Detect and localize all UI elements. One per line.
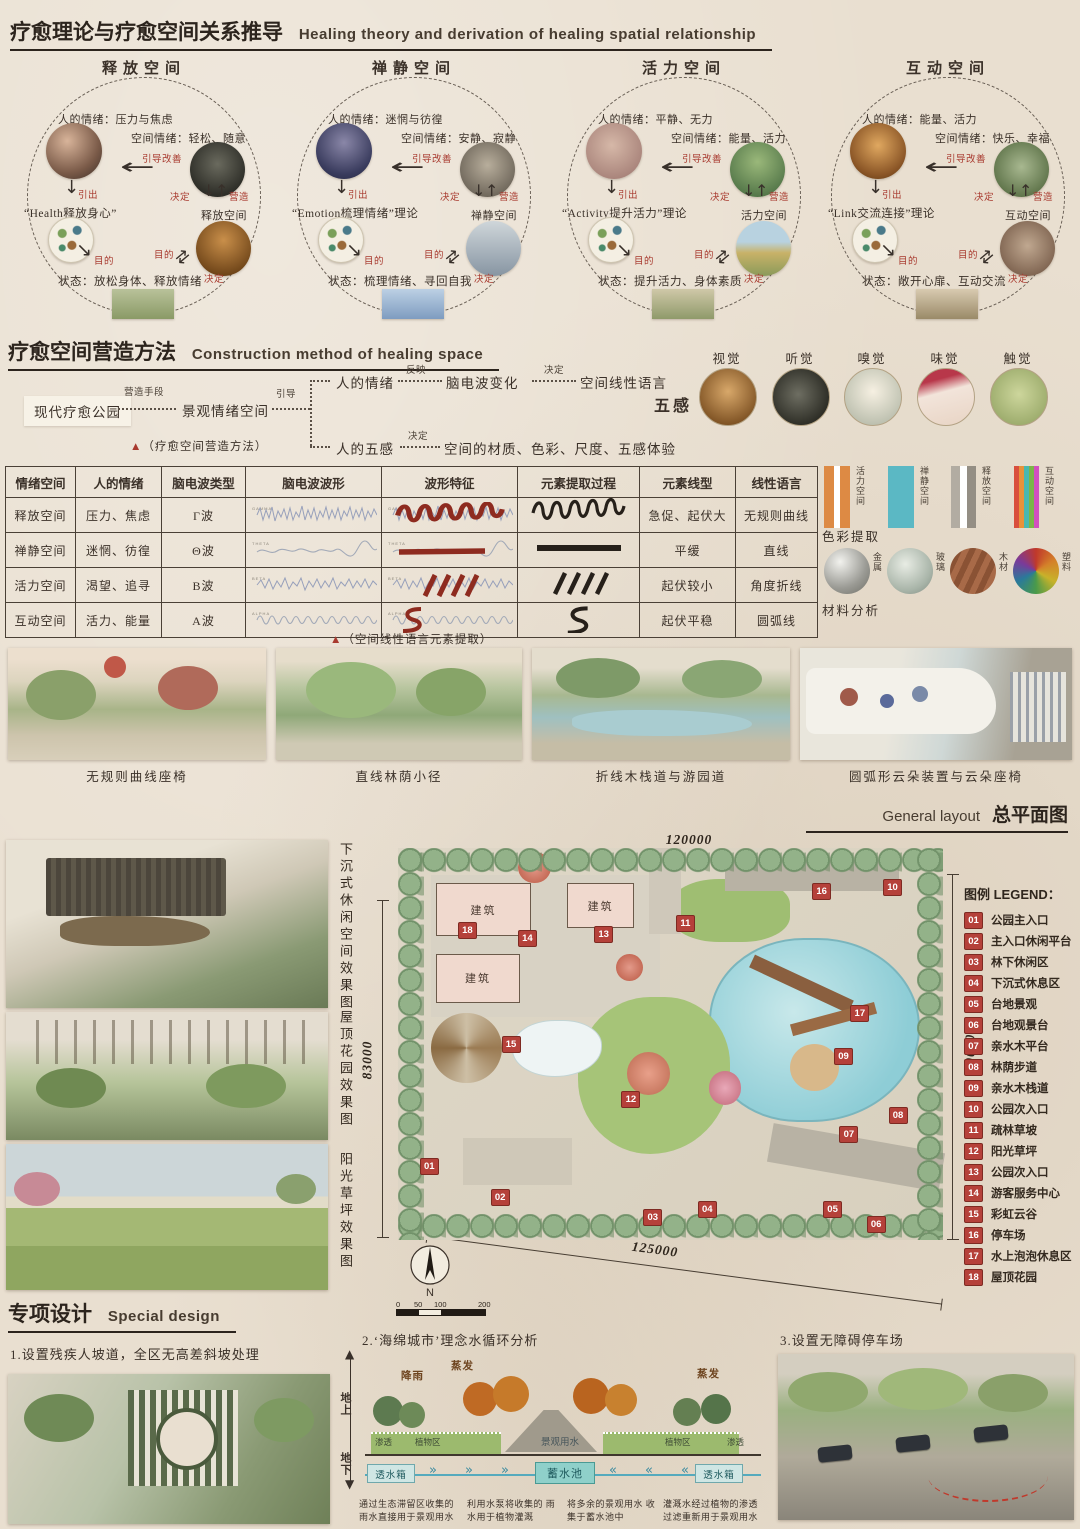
plant-zone-label: 植物区 xyxy=(415,1436,441,1448)
create-label: 营造 xyxy=(769,189,789,203)
plan-tree-border-right xyxy=(917,848,943,1240)
swatch-label: 互动空间 xyxy=(1043,466,1056,528)
special-item-2: 2.‘海绵城市’理念水循环分析 xyxy=(362,1330,538,1349)
sense-label-smell: 嗅觉 xyxy=(844,348,900,367)
create-arrow-icon: ↑ xyxy=(755,183,768,199)
plan-marker-10: 10 xyxy=(883,879,902,896)
create-label: 营造 xyxy=(499,189,519,203)
plan-marker-18: 18 xyxy=(458,922,477,939)
plan-marker-05: 05 xyxy=(823,1201,842,1218)
legend-item-label: 水上泡泡休息区 xyxy=(991,1248,1072,1264)
color-extract-caption: 色彩提取 xyxy=(822,526,880,545)
flow-chevron-icon: » xyxy=(501,1464,509,1477)
legend-item-label: 亲水木栈道 xyxy=(991,1080,1049,1096)
legend-item-label: 阳光草坪 xyxy=(991,1143,1037,1159)
plan-marker-03: 03 xyxy=(643,1209,662,1226)
svg-text:BETA: BETA xyxy=(252,576,266,581)
header: 疗愈理论与疗愈空间关系推导 Healing theory and derivat… xyxy=(10,16,772,46)
create-arrow-icon: ↑ xyxy=(1019,183,1032,199)
plan-tree-border-left xyxy=(398,848,424,1240)
plan-marker-16: 16 xyxy=(812,883,831,900)
flow-chevron-icon: » xyxy=(465,1464,473,1477)
evap-label: 蒸发 xyxy=(451,1358,474,1373)
legend-item-label: 台地观景台 xyxy=(991,1017,1049,1033)
above-ground-label: 地上 xyxy=(337,1392,353,1416)
legend-item-label: 彩虹云谷 xyxy=(991,1206,1037,1222)
legend-item-label: 停车场 xyxy=(991,1227,1026,1243)
plan-marker-12: 12 xyxy=(621,1091,640,1108)
person-photo xyxy=(586,123,642,179)
sense-label-vision: 视觉 xyxy=(699,348,755,367)
axis-down-arrow-icon: ▼ xyxy=(345,1478,354,1490)
legend-item-label: 林荫步道 xyxy=(991,1059,1037,1075)
legend-item-label: 游客服务中心 xyxy=(991,1185,1060,1201)
purpose-arrow-icon: ↘ xyxy=(616,241,632,260)
special-design-header: 专项设计 Special design xyxy=(8,1298,236,1328)
col-header: 脑电波类型 xyxy=(162,467,246,498)
plan-marker-11: 11 xyxy=(676,915,695,932)
render-ramp xyxy=(8,1374,330,1524)
eeg-waveform-gamma: GAMMA xyxy=(251,502,377,528)
page-title-en: Healing theory and derivation of healing… xyxy=(299,26,756,43)
material-photo-wood xyxy=(950,548,996,594)
plant-zone-label: 植物区 xyxy=(665,1436,691,1448)
seep-label: 渗透 xyxy=(375,1436,392,1448)
improve-arrow-icon: ← xyxy=(390,157,425,179)
below-ground-label: 地下 xyxy=(337,1452,353,1476)
create-label: 营造 xyxy=(229,189,249,203)
col-header: 情绪空间 xyxy=(6,467,76,498)
plan-marker-13: 13 xyxy=(594,926,613,943)
swatch-label: 释放空间 xyxy=(980,466,993,528)
state-photo xyxy=(652,289,714,319)
theory-circle-zen: 禅静空间 人的情绪：迷惘与彷徨 空间情绪：安静、寂静 引导改善 ← ↓ 引出 “… xyxy=(288,75,540,320)
north-arrow-icon xyxy=(404,1244,456,1288)
lead-label: 引出 xyxy=(348,187,368,201)
person-photo xyxy=(46,123,102,179)
table-caption: ▲（空间线性语言元素提取） xyxy=(330,631,492,647)
render-caption-roof: 屋顶花园效果图 xyxy=(336,1010,355,1129)
water-caption-1: 通过生态滞留区收集的 雨水直接用于景观用水 xyxy=(359,1498,459,1524)
page-title: 疗愈理论与疗愈空间关系推导 Healing theory and derivat… xyxy=(10,21,772,51)
decide-arrow-icon: ↓ xyxy=(202,183,215,199)
plan-marker-06: 06 xyxy=(867,1216,886,1233)
eeg-feature-gamma: GAMMA xyxy=(387,502,513,528)
theory-label: “Emotion梳理情绪”理论 xyxy=(292,205,418,221)
purpose-label: 目的 xyxy=(94,253,114,267)
ground-line xyxy=(365,1454,761,1456)
eeg-table: 情绪空间 人的情绪 脑电波类型 脑电波波形 波形特征 元素提取过程 元素线型 线… xyxy=(5,466,818,638)
lead-arrow-icon: ↓ xyxy=(868,179,883,197)
plan-building: 建筑 xyxy=(436,883,531,936)
plan-marker-08: 08 xyxy=(889,1107,908,1124)
flow-means-label: 营造手段 xyxy=(124,384,164,398)
legend-item-label: 主入口休闲平台 xyxy=(991,933,1072,949)
sense-label-hearing: 听觉 xyxy=(772,348,828,367)
person-photo xyxy=(850,123,906,179)
flow-chevron-icon: » xyxy=(429,1464,437,1477)
storage-pool-box: 蓄水池 xyxy=(535,1462,595,1484)
table-row: 活力空间渴望、追寻Β波 BETA BETA 起伏较小角度折线 xyxy=(6,568,818,603)
flow-mid-node: 景观情绪空间 xyxy=(182,400,269,420)
material-label: 金属 xyxy=(871,552,884,572)
gallery-caption-2: 直线林荫小径 xyxy=(276,766,522,785)
col-header: 元素线型 xyxy=(640,467,736,498)
plan-pink-tree xyxy=(709,1071,742,1104)
render-sunny-lawn xyxy=(6,1144,328,1290)
dim-left-line xyxy=(382,900,383,1238)
circle-title: 活力空间 xyxy=(558,57,810,78)
render-caption-sunken: 下沉式休闲空间效果图 xyxy=(336,842,355,1012)
purpose-arrow-icon: ↘ xyxy=(346,241,362,260)
col-header: 人的情绪 xyxy=(76,467,162,498)
route-arc xyxy=(928,1450,1048,1502)
seep-label: 渗透 xyxy=(727,1436,744,1448)
table-header-row: 情绪空间 人的情绪 脑电波类型 脑电波波形 波形特征 元素提取过程 元素线型 线… xyxy=(6,467,818,498)
circle-title: 互动空间 xyxy=(822,57,1074,78)
space-photo-2 xyxy=(196,221,251,276)
permeable-tank-box: 透水箱 xyxy=(367,1464,415,1483)
compass: N xyxy=(404,1244,456,1299)
legend-item-label: 公园主入口 xyxy=(991,912,1049,928)
special-item-3: 3.设置无障碍停车场 xyxy=(780,1330,904,1349)
improve-arrow-icon: ← xyxy=(120,157,155,179)
create-arrow-icon: ↑ xyxy=(485,183,498,199)
water-caption-3: 将多余的景观用水 收集于蓄水池中 xyxy=(567,1498,659,1524)
render-roof-garden xyxy=(6,1012,328,1140)
flow-dotted-line xyxy=(532,380,576,382)
five-senses-label: 五感 xyxy=(654,392,692,416)
swatch-zen: 禅静空间 xyxy=(888,466,931,528)
render-sunken-space xyxy=(6,840,328,1008)
plan-marker-02: 02 xyxy=(491,1189,510,1206)
dim-top-label: 120000 xyxy=(443,832,935,848)
flow-chevron-icon: « xyxy=(609,1464,617,1477)
col-header: 线性语言 xyxy=(736,467,818,498)
material-label: 木材 xyxy=(997,552,1010,572)
legend-title: 图例 LEGEND： xyxy=(964,884,1061,903)
flow-dotted-line xyxy=(310,446,330,448)
state-photo xyxy=(916,289,978,319)
flow-b2-senses: 人的五感 xyxy=(336,438,394,458)
scale-bar: 0 50 100 200 xyxy=(396,1300,506,1316)
water-cycle-diagram: ▲ ▼ 地上 地下 降雨 蒸发 蒸发 渗透 植物区 景观用水 植物区 渗透 » … xyxy=(345,1352,765,1524)
special-item-1: 1.设置残疾人坡道，全区无高差斜坡处理 xyxy=(10,1344,260,1363)
flow-b2-result: 空间的材质、色彩、尺度、五感体验 xyxy=(444,438,676,458)
lead-label: 引出 xyxy=(882,187,902,201)
decide-label: 决定 xyxy=(440,189,460,203)
dim-left-label: 83000 xyxy=(359,1041,375,1080)
rain-label: 降雨 xyxy=(401,1368,424,1383)
dim-bottom-label: 125000 xyxy=(631,1239,679,1261)
lead-arrow-icon: ↓ xyxy=(604,179,619,197)
person-photo xyxy=(316,123,372,179)
flow-dotted-line xyxy=(272,408,310,410)
flow-guide-label: 引导 xyxy=(276,386,296,400)
gallery-photo-4 xyxy=(800,648,1072,760)
lead-arrow-icon: ↓ xyxy=(334,179,349,197)
theory-circle-interaction: 互动空间 人的情绪：能量、活力 空间情绪：快乐、幸福 引导改善 ← ↓ 引出 “… xyxy=(822,75,1074,320)
col-header: 波形特征 xyxy=(382,467,518,498)
material-photo-metal xyxy=(824,548,870,594)
space-photo-2 xyxy=(736,221,791,276)
plan-marker-07: 07 xyxy=(839,1126,858,1143)
poster: 疗愈理论与疗愈空间关系推导 Healing theory and derivat… xyxy=(0,0,1080,1529)
flow-b1-eeg: 脑电波变化 xyxy=(446,372,519,392)
theory-label: “Activity提升活力”理论 xyxy=(562,205,687,221)
permeable-tank-box: 透水箱 xyxy=(695,1464,743,1483)
flow-b1-language: 空间线性语言 xyxy=(580,372,667,392)
svg-text:ALPHA: ALPHA xyxy=(252,611,270,616)
purpose-label: 目的 xyxy=(634,253,654,267)
eeg-feature-theta: THETA xyxy=(387,537,513,563)
state-label: 状态：提升活力、身体素质 xyxy=(598,273,742,289)
gallery-photo-3 xyxy=(532,648,790,760)
triangle-icon: ▲ xyxy=(330,634,342,646)
svg-text:BETA: BETA xyxy=(388,576,402,581)
lead-label: 引出 xyxy=(78,187,98,201)
eeg-feature-beta: BETA xyxy=(387,572,513,598)
layout-title-zh: 总平面图 xyxy=(992,805,1068,826)
state-label: 状态：放松身体、释放情绪 xyxy=(58,273,202,289)
eeg-waveform-beta: BETA xyxy=(251,572,377,598)
plan-marker-14: 14 xyxy=(518,930,537,947)
svg-text:ALPHA: ALPHA xyxy=(388,611,406,616)
lead-arrow-icon: ↓ xyxy=(64,179,79,197)
plan-spiral-plaza xyxy=(431,1013,502,1084)
theory-circle-release: 释放空间 人的情绪：压力与焦虑 空间情绪：轻松、随意 引导改善 ← ↓ 引出 “… xyxy=(18,75,270,320)
swatch-release: 释放空间 xyxy=(951,466,993,528)
flow-dotted-line xyxy=(400,446,440,448)
scale-bar-segments xyxy=(396,1309,486,1316)
water-caption-2: 利用水泵将收集的 雨水用于植物灌溉 xyxy=(467,1498,559,1524)
decide-arrow-icon: ↓ xyxy=(742,183,755,199)
legend-item-label: 亲水木平台 xyxy=(991,1038,1049,1054)
sense-photo-vision xyxy=(699,368,757,426)
construction-title-en: Construction method of healing space xyxy=(192,346,483,363)
element-extract-slashes xyxy=(529,568,629,598)
decide-label-2: 决定 xyxy=(1008,271,1028,285)
material-photo-plastic xyxy=(1013,548,1059,594)
purpose-arrow-icon: ↘ xyxy=(880,241,896,260)
state-photo xyxy=(382,289,444,319)
sense-photo-smell xyxy=(844,368,902,426)
plan-marker-15: 15 xyxy=(502,1036,521,1053)
construction-title-zh: 疗愈空间营造方法 xyxy=(8,341,176,364)
gallery-photo-1 xyxy=(8,648,266,760)
table-row: 释放空间压力、焦虑Γ波 GAMMA GAMMA 急促、起伏大无规则曲线 xyxy=(6,498,818,533)
legend-item-label: 林下休闲区 xyxy=(991,954,1049,970)
plan-building: 建筑 xyxy=(567,883,634,928)
element-extract-line xyxy=(529,533,629,563)
special-title-en: Special design xyxy=(108,1308,220,1325)
swatch-interaction: 互动空间 xyxy=(1014,466,1056,528)
circle-title: 禅静空间 xyxy=(288,57,540,78)
triangle-icon: ▲ xyxy=(130,441,142,453)
special-title-zh: 专项设计 xyxy=(8,1303,92,1326)
purpose-label: 目的 xyxy=(364,253,384,267)
plan-south-plaza xyxy=(463,1138,572,1185)
flow-chevron-icon: « xyxy=(681,1464,689,1477)
eeg-feature-alpha: ALPHA xyxy=(387,607,513,633)
page-title-zh: 疗愈理论与疗愈空间关系推导 xyxy=(10,21,283,44)
render-parking xyxy=(778,1354,1074,1520)
swatch-label: 活力空间 xyxy=(854,466,867,528)
decide-label-2: 决定 xyxy=(474,271,494,285)
svg-text:THETA: THETA xyxy=(388,541,406,546)
decide-label: 决定 xyxy=(710,189,730,203)
material-analysis-caption: 材料分析 xyxy=(822,600,880,619)
circle-title: 释放空间 xyxy=(18,57,270,78)
eeg-waveform-alpha: ALPHA xyxy=(251,607,377,633)
material-label: 塑料 xyxy=(1060,552,1073,572)
flow-dotted-line xyxy=(310,380,330,382)
decide-label-2: 决定 xyxy=(744,271,764,285)
layout-header: General layout 总平面图 xyxy=(806,800,1068,833)
gallery-caption-3: 折线木栈道与游园道 xyxy=(532,766,790,785)
gallery-caption-4: 圆弧形云朵装置与云朵座椅 xyxy=(800,766,1072,785)
dim-bottom-line xyxy=(426,1236,942,1305)
flow-dotted-line xyxy=(398,380,442,382)
plan-building: 建筑 xyxy=(436,954,520,1003)
legend-item-label: 台地景观 xyxy=(991,996,1037,1012)
decide-arrow-icon: ↓ xyxy=(1006,183,1019,199)
plan-marker-04: 04 xyxy=(698,1201,717,1218)
element-extract-scurve xyxy=(529,603,629,633)
legend-item-label: 公园次入口 xyxy=(991,1164,1049,1180)
swatch-vitality: 活力空间 xyxy=(824,466,867,528)
plan-tree-border-bottom xyxy=(398,1214,943,1240)
sense-label-touch: 触觉 xyxy=(990,348,1046,367)
sense-photo-touch xyxy=(990,368,1048,426)
element-extract-curve xyxy=(529,498,629,528)
improve-arrow-icon: ← xyxy=(660,157,695,179)
space-photo-2 xyxy=(466,221,521,276)
state-photo xyxy=(112,289,174,319)
state-label: 状态：敞开心扉、互动交流 xyxy=(862,273,1006,289)
evap-label: 蒸发 xyxy=(697,1366,720,1381)
theory-circle-vitality: 活力空间 人的情绪：平静、无力 空间情绪：能量、活力 引导改善 ← ↓ 引出 “… xyxy=(558,75,810,320)
create-label: 营造 xyxy=(1033,189,1053,203)
col-header: 脑电波波形 xyxy=(246,467,382,498)
legend-item-label: 疏林草坡 xyxy=(991,1122,1037,1138)
material-label: 玻璃 xyxy=(934,552,947,572)
flow-b2-decide: 决定 xyxy=(408,428,428,442)
sense-photo-hearing xyxy=(772,368,830,426)
space-photo-2 xyxy=(1000,221,1055,276)
compass-label: N xyxy=(404,1287,456,1299)
improve-arrow-icon: ← xyxy=(924,157,959,179)
col-header: 元素提取过程 xyxy=(518,467,640,498)
purpose-label: 目的 xyxy=(898,253,918,267)
plan-tree-border-top xyxy=(398,848,943,874)
decide-arrow-icon: ↓ xyxy=(472,183,485,199)
plan-pond xyxy=(709,938,920,1122)
flow-b1-emotion: 人的情绪 xyxy=(336,372,394,392)
plan-marker-09: 09 xyxy=(834,1048,853,1065)
svg-text:THETA: THETA xyxy=(252,541,270,546)
legend-item-label: 公园次入口 xyxy=(991,1101,1049,1117)
gallery-photo-2 xyxy=(276,648,522,760)
eeg-waveform-theta: THETA xyxy=(251,537,377,563)
decide-label-2: 决定 xyxy=(204,271,224,285)
plan-marker-17: 17 xyxy=(850,1005,869,1022)
swatch-label: 禅静空间 xyxy=(918,466,931,528)
water-caption-4: 灌溉水经过植物的渗透 过滤重新用于景观用水 xyxy=(663,1498,765,1524)
legend-item-label: 屋顶花园 xyxy=(991,1269,1037,1285)
decide-label: 决定 xyxy=(170,189,190,203)
state-label: 状态：梳理情绪、寻回自我 xyxy=(328,273,472,289)
water-use-label: 景观用水 xyxy=(541,1434,579,1448)
construction-caption: ▲（疗愈空间营造方法） xyxy=(130,438,267,454)
table-row: 禅静空间迷惘、彷徨Θ波 THETA THETA 平缓直线 xyxy=(6,533,818,568)
create-arrow-icon: ↑ xyxy=(215,183,228,199)
sense-label-taste: 味觉 xyxy=(917,348,973,367)
render-caption-lawn: 阳光草坪效果图 xyxy=(336,1152,355,1271)
layout-title-en: General layout xyxy=(882,808,980,825)
decide-label: 决定 xyxy=(974,189,994,203)
lead-label: 引出 xyxy=(618,187,638,201)
material-photo-glass xyxy=(887,548,933,594)
purpose-arrow-icon: ↘ xyxy=(76,241,92,260)
dim-right-line xyxy=(952,874,953,1240)
svg-text:GAMMA: GAMMA xyxy=(252,506,272,511)
gallery-caption-1: 无规则曲线座椅 xyxy=(8,766,266,785)
plan-marker-01: 01 xyxy=(420,1158,439,1175)
legend-item-label: 下沉式休息区 xyxy=(991,975,1060,991)
flow-dotted-line xyxy=(118,408,176,410)
flow-start-node: 现代疗愈公园 xyxy=(24,396,131,426)
flow-bracket xyxy=(310,380,312,446)
plan-feature-tree xyxy=(627,1052,671,1095)
flow-b1-decide: 决定 xyxy=(544,362,564,376)
flow-b1-reflect: 反映 xyxy=(406,362,426,376)
flow-chevron-icon: « xyxy=(645,1464,653,1477)
site-plan: 建筑 建筑 建筑 01 02 03 04 05 06 07 08 09 10 1… xyxy=(398,848,943,1240)
sense-photo-taste xyxy=(917,368,975,426)
